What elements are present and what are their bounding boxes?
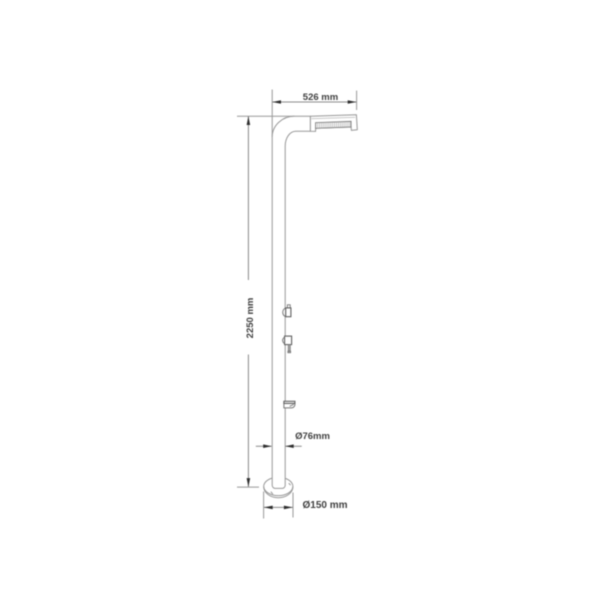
svg-text:Ø76mm: Ø76mm	[295, 431, 330, 442]
svg-text:Ø150 mm: Ø150 mm	[302, 500, 347, 511]
svg-text:526 mm: 526 mm	[303, 92, 338, 103]
svg-text:2250 mm: 2250 mm	[245, 298, 256, 339]
